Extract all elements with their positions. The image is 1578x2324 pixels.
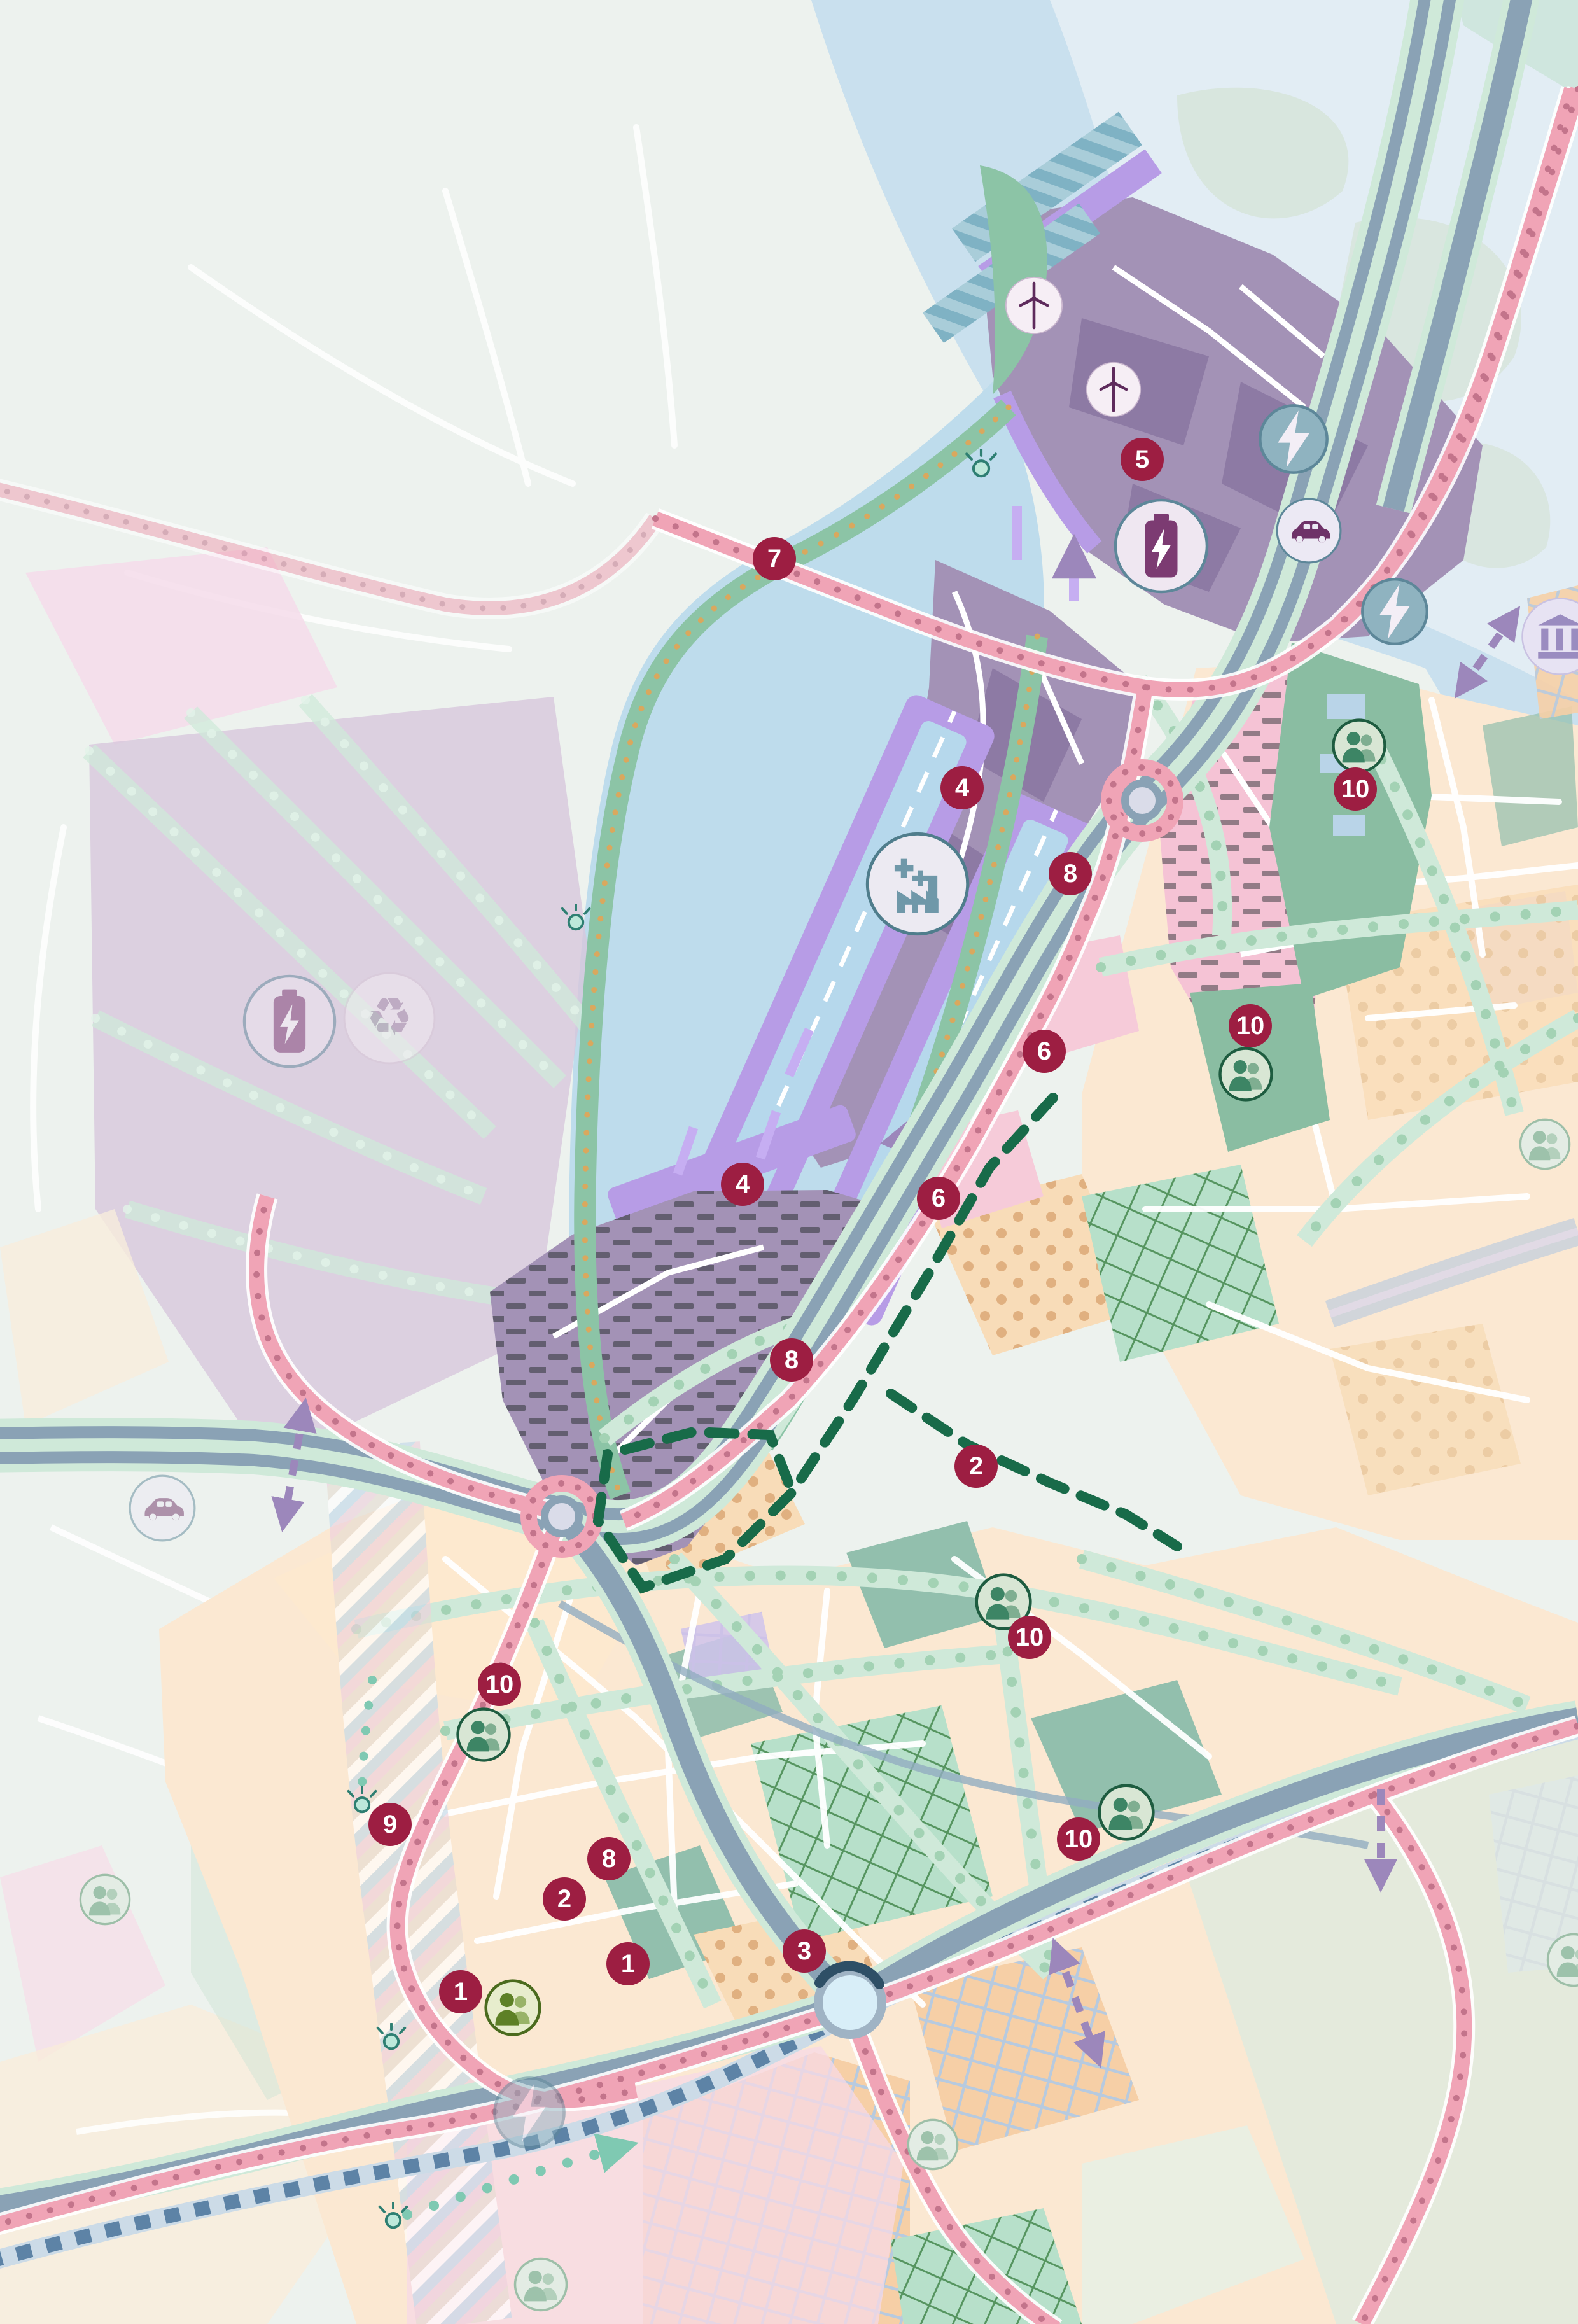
- map-marker-10: 10: [478, 1663, 521, 1706]
- map-marker-7: 7: [753, 537, 796, 580]
- map-marker-3: 3: [783, 1929, 826, 1973]
- map-marker-10: 10: [1229, 1004, 1272, 1047]
- battery-bolt-icon: [1114, 498, 1209, 594]
- map-marker-10: 10: [1334, 767, 1377, 811]
- map-marker-6: 6: [1023, 1030, 1066, 1073]
- people-icon: [456, 1707, 512, 1763]
- svg-text:♻: ♻: [366, 986, 413, 1048]
- map-marker-4: 4: [721, 1163, 764, 1206]
- car-icon: [1276, 498, 1342, 564]
- people-faded-icon: [906, 2118, 960, 2171]
- lightning-icon: [1360, 577, 1429, 646]
- wind-turbine-icon: [1005, 276, 1063, 335]
- lightning-icon: [1258, 403, 1329, 475]
- map-marker-6: 6: [917, 1177, 960, 1220]
- sparkle-icon: [375, 2202, 411, 2237]
- map-marker-1: 1: [439, 1970, 482, 2013]
- people-icon: [1331, 718, 1387, 774]
- battery-bolt-icon: [242, 974, 337, 1068]
- sparkle-icon: [558, 904, 594, 939]
- wind-turbine-icon: [1086, 361, 1142, 417]
- people-faded-icon: [78, 1873, 132, 1926]
- marker-layer: ♻ 5748106104682101098211031: [0, 0, 1578, 2324]
- lightning-icon: [492, 2076, 566, 2150]
- people-olive-icon: [484, 1978, 542, 2037]
- people-faded-icon: [513, 2257, 569, 2313]
- map-marker-2: 2: [954, 1445, 998, 1488]
- bank-icon: [1521, 597, 1578, 676]
- map-marker-10: 10: [1008, 1616, 1051, 1659]
- map-marker-4: 4: [940, 766, 984, 809]
- map-marker-10: 10: [1057, 1817, 1100, 1861]
- recycle-icon: ♻: [342, 971, 436, 1065]
- map-marker-8: 8: [1049, 852, 1092, 895]
- sparkle-icon: [374, 2023, 409, 2059]
- sparkle-icon: [962, 449, 1000, 487]
- map-marker-8: 8: [587, 1837, 631, 1880]
- people-faded-icon: [1546, 1932, 1578, 1988]
- car-icon: [129, 1474, 196, 1542]
- map-marker-5: 5: [1121, 438, 1164, 481]
- map-marker-2: 2: [543, 1877, 586, 1921]
- map-marker-1: 1: [606, 1942, 650, 1985]
- people-icon: [1097, 1783, 1156, 1842]
- factory-icon: [865, 832, 970, 936]
- people-faded-icon: [1518, 1117, 1572, 1171]
- map-marker-9: 9: [368, 1803, 412, 1846]
- map-marker-8: 8: [770, 1338, 813, 1382]
- masterplan-map: ♻ 5748106104682101098211031: [0, 0, 1578, 2324]
- people-icon: [1218, 1046, 1274, 1102]
